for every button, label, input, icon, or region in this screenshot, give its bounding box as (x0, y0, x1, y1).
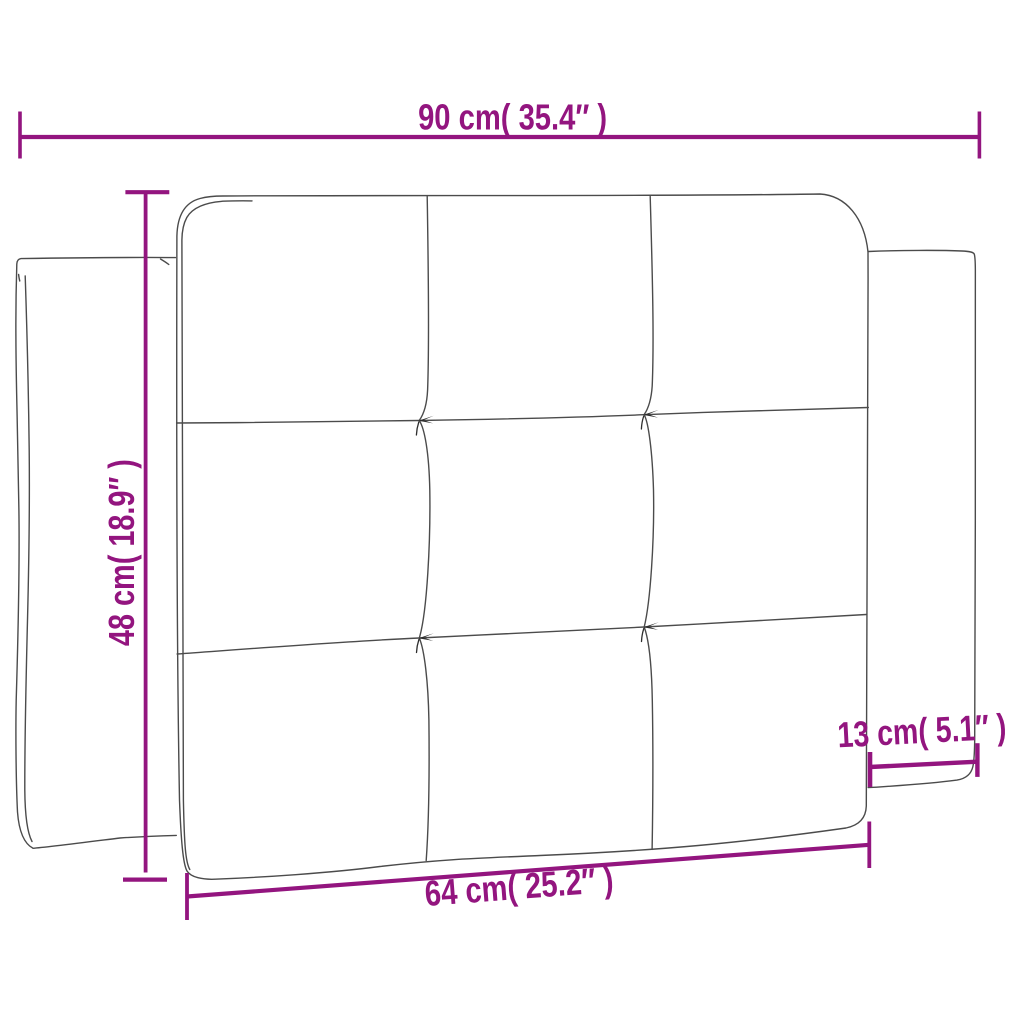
svg-text:90 cm( 35.4″ ): 90 cm( 35.4″ ) (418, 96, 607, 137)
svg-text:48 cm( 18.9″ ): 48 cm( 18.9″ ) (101, 459, 142, 646)
